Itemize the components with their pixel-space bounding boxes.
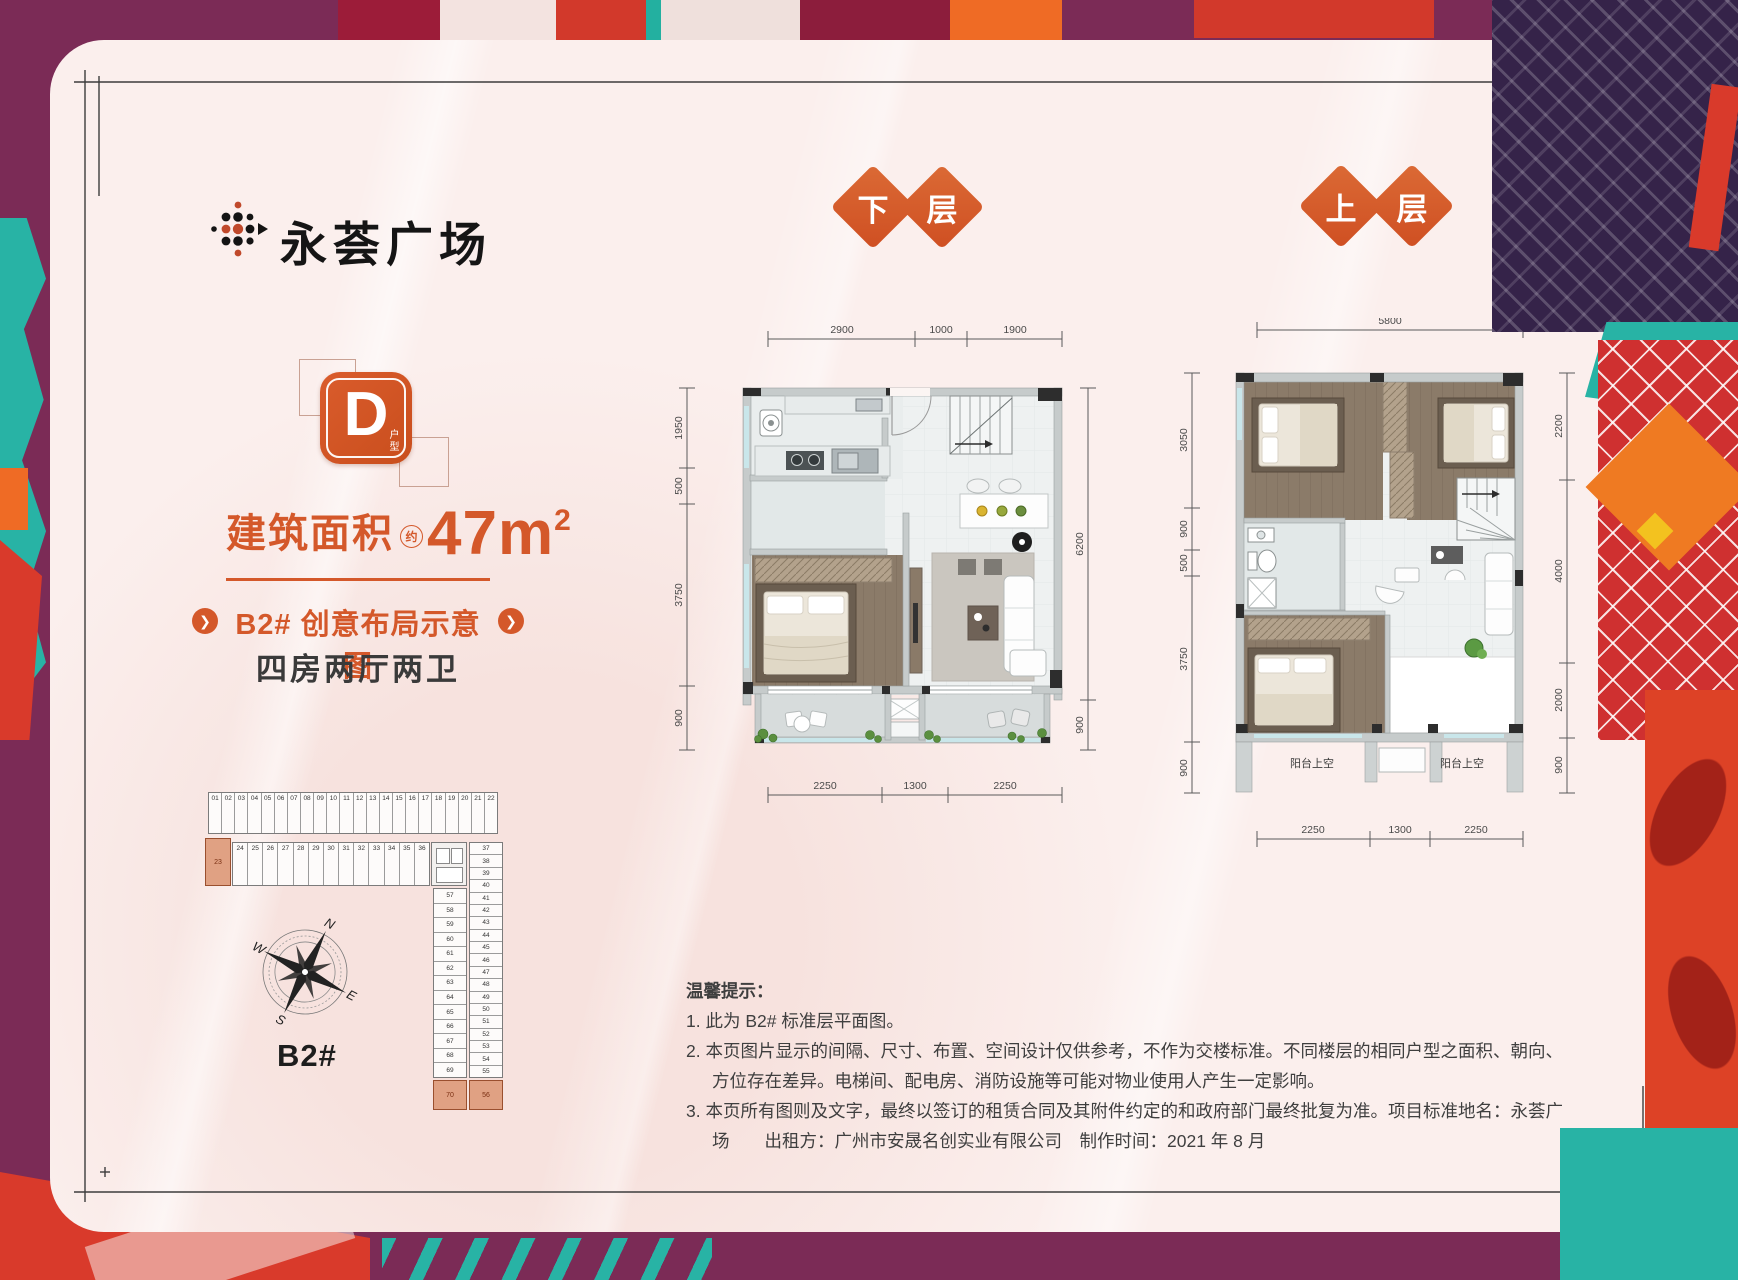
dim-label: 900 [1178,759,1190,777]
siteplan-col-units-57-69: 57585960616263646566676869 [433,888,467,1078]
dim-label: 500 [1178,554,1190,572]
unit-cell: 54 [470,1053,502,1065]
void-label: 阳台上空 [1290,756,1334,770]
unit-cell: 43 [470,917,502,929]
dim-label: 1950 [673,416,685,440]
site-key-plan: 0102030405060708091011121314151617181920… [205,782,517,1116]
dim-label: 1900 [1003,324,1027,336]
unit-cell: 66 [434,1020,466,1035]
unit-cell: 62 [434,962,466,977]
lower-floor-plan: 2900 1000 1900 1950 500 3750 900 6200 90… [660,318,1110,878]
unit-cell: 09 [314,793,327,833]
dim-label: 900 [673,709,685,727]
unit-cell: 34 [385,843,400,885]
collage-shape [1560,1128,1738,1280]
chevron-right-icon: ❯ [192,608,218,634]
unit-cell: 41 [470,893,502,905]
area-approx-circle: 约 [400,525,423,548]
unit-cell: 11 [340,793,353,833]
unit-cell: 30 [324,843,339,885]
void-label: 阳台上空 [1440,756,1484,770]
unit-cell: 21 [472,793,485,833]
unit-cell: 19 [446,793,459,833]
area-value: 47m [427,506,554,562]
unit-cell: 69 [434,1063,466,1077]
unit-cell: 02 [222,793,235,833]
area-line: 建筑面积 约 47m 2 [226,506,571,562]
compass-icon: N W S E [243,910,367,1034]
unit-cell: 47 [470,967,502,979]
unit-cell: 64 [434,991,466,1006]
dim-label: 900 [1553,756,1565,774]
unit-cell: 39 [470,868,502,880]
unit-cell: 32 [354,843,369,885]
unit-cell: 65 [434,1005,466,1020]
dim-label: 2250 [1464,824,1488,836]
note-item: 3. 本页所有图则及文字，最终以签订的租赁合同及其附件约定的和政府部门最终批复为… [686,1096,1570,1156]
collage-shape [1645,690,1738,1155]
dim-label: 500 [673,477,685,495]
dim-label: 1000 [929,324,953,336]
collage-shape [1194,0,1434,38]
logo-text: 永荟广场 [280,206,492,275]
layout-description: 四房两厅两卫 [226,644,490,689]
siteplan-unit-highlight: 56 [469,1080,503,1110]
collage-shape [0,468,28,530]
unit-cell: 46 [470,954,502,966]
dim-label: 3750 [1178,647,1190,671]
upper-floor-char: 层 [1397,184,1428,229]
unit-cell: 06 [275,793,288,833]
dim-label: 4000 [1553,559,1565,583]
unit-cell: 28 [294,843,309,885]
unit-cell: 58 [434,904,466,919]
dim-label: 2250 [1301,824,1325,836]
notes-block: 温馨提示： 1. 此为 B2# 标准层平面图。 2. 本页图片显示的间隔、尺寸、… [686,976,1570,1157]
unit-cell: 29 [309,843,324,885]
siteplan-unit-highlight: 70 [433,1080,467,1110]
unit-cell: 17 [419,793,432,833]
collage-shape [440,0,560,40]
unit-cell: 52 [470,1029,502,1041]
lower-floor-char: 下 [858,185,889,230]
unit-cell: 59 [434,918,466,933]
unit-cell: 67 [434,1034,466,1049]
unit-cell: 53 [470,1041,502,1053]
unit-cell: 26 [263,843,278,885]
poster: 永荟广场 D 户型 建筑面积 约 47m 2 ❯ B2# 创意布局示意图 ❯ 四… [0,0,1738,1280]
unit-cell: 07 [288,793,301,833]
unit-cell: 42 [470,905,502,917]
unit-cell: 45 [470,942,502,954]
unit-cell: 24 [233,843,248,885]
unit-cell: 38 [470,855,502,867]
note-item: 1. 此为 B2# 标准层平面图。 [686,1006,1570,1036]
unit-type-badge: D 户型 [320,372,412,464]
siteplan-col-units-37-55: 37383940414243444546474849505152535455 [469,842,503,1078]
siteplan-row-units-24-36: 24252627282930313233343536 [232,842,430,886]
unit-cell: 20 [459,793,472,833]
unit-cell: 37 [470,843,502,855]
area-prefix: 建筑面积 [226,514,394,562]
dim-label: 900 [1178,520,1190,538]
compass-e: E [344,987,359,1004]
collage-diamond [1586,404,1738,571]
unit-cell: 49 [470,992,502,1004]
unit-cell: 15 [393,793,406,833]
unit-cell: 10 [327,793,340,833]
unit-cell: 50 [470,1004,502,1016]
unit-cell: 63 [434,976,466,991]
unit-cell: 04 [248,793,261,833]
unit-cell: 31 [339,843,354,885]
unit-cell: 03 [235,793,248,833]
collage-shape [800,0,952,44]
unit-cell: 22 [485,793,497,833]
chevron-right-icon: ❯ [498,608,524,634]
unit-type-suffix: 户型 [385,429,400,453]
unit-cell: 13 [367,793,380,833]
dim-label: 2000 [1553,688,1565,712]
unit-cell: 25 [248,843,263,885]
unit-cell: 40 [470,880,502,892]
compass-n: N [322,915,338,933]
unit-cell: 35 [400,843,415,885]
dim-label: 1300 [1388,824,1412,836]
compass-s: S [273,1011,288,1028]
unit-cell: 08 [301,793,314,833]
note-item: 2. 本页图片显示的间隔、尺寸、布置、空间设计仅供参考，不作为交楼标准。不同楼层… [686,1036,1570,1096]
unit-cell: 12 [354,793,367,833]
dim-label: 2200 [1553,414,1565,438]
unit-cell: 61 [434,947,466,962]
upper-floor-char: 上 [1326,184,1357,229]
dim-label: 2250 [813,780,837,792]
dim-label: 3050 [1178,428,1190,452]
area-underline [226,578,490,581]
dim-label: 1300 [903,780,927,792]
unit-cell: 27 [278,843,293,885]
unit-cell: 48 [470,979,502,991]
area-superscript: 2 [554,506,571,536]
collage-pattern [382,1238,712,1280]
collage-pattern [1598,340,1738,740]
lower-floor-char: 层 [927,185,958,230]
dim-label: 900 [1074,716,1086,734]
siteplan-unit-highlight: 23 [205,838,231,886]
dim-label: 3750 [673,583,685,607]
unit-cell: 57 [434,889,466,904]
upper-floor-plan: 阳台上空 阳台上空 5800 3050 900 500 3750 900 220… [1140,318,1600,878]
dim-label: 6200 [1074,532,1086,556]
notes-title: 温馨提示： [686,976,1570,1006]
unit-cell: 01 [209,793,222,833]
collage-leaf [1648,937,1738,1087]
unit-cell: 60 [434,933,466,948]
unit-cell: 18 [432,793,445,833]
dim-label: 5800 [1378,318,1402,327]
unit-cell: 36 [415,843,429,885]
siteplan-row-units-01-22: 0102030405060708091011121314151617181920… [208,792,498,834]
unit-cell: 16 [406,793,419,833]
dim-label: 2250 [993,780,1017,792]
unit-cell: 33 [369,843,384,885]
unit-cell: 05 [262,793,275,833]
siteplan-core-block [431,842,467,886]
unit-cell: 55 [470,1066,502,1077]
unit-cell: 44 [470,930,502,942]
dim-label: 2900 [830,324,854,336]
unit-cell: 51 [470,1016,502,1028]
building-label: B2# [277,1038,337,1074]
unit-cell: 68 [434,1049,466,1064]
logo-dots-icon [205,196,271,276]
unit-cell: 14 [380,793,393,833]
